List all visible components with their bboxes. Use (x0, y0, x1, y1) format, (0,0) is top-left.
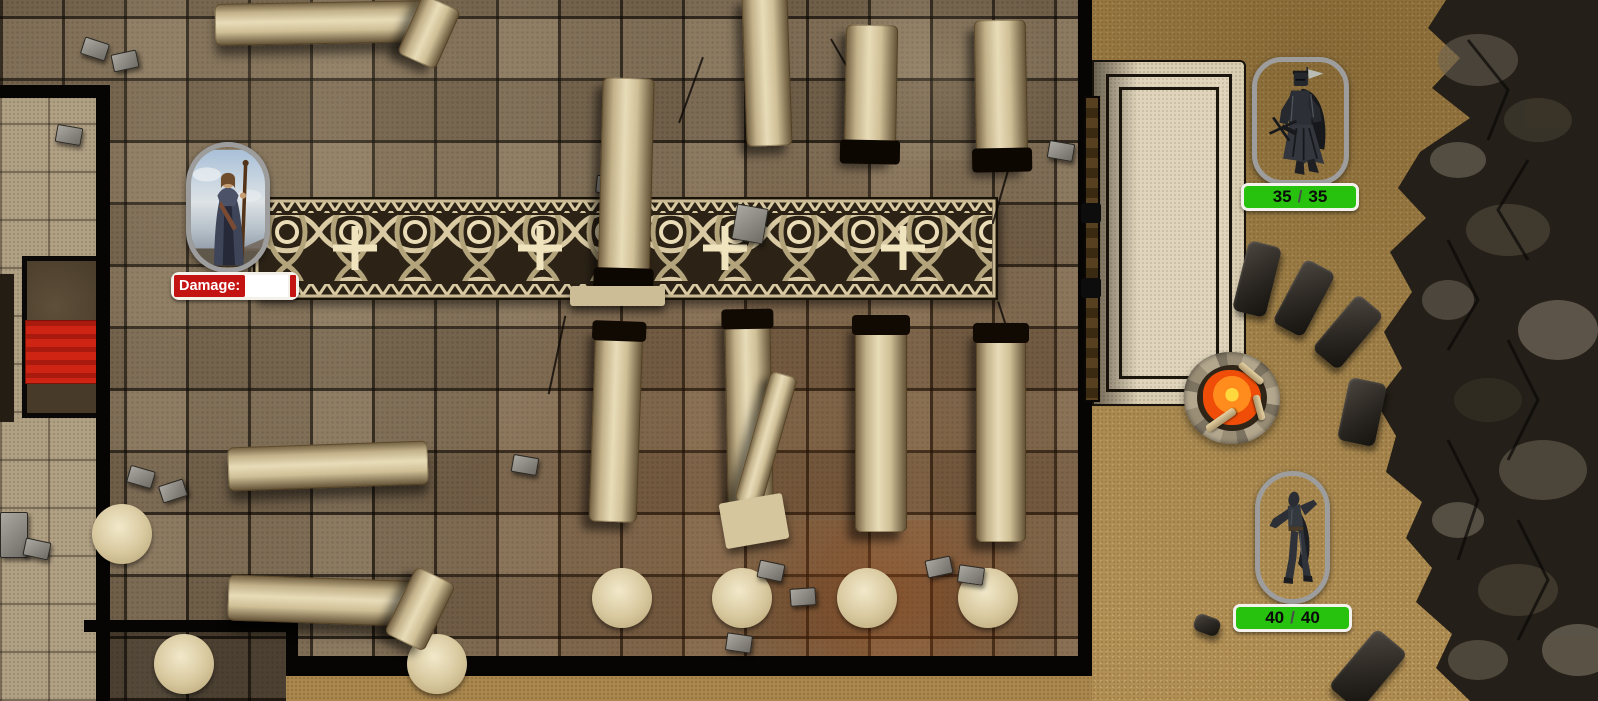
hp-separator: / (1298, 187, 1303, 207)
knight-hp-bar[interactable]: 35 / 35 (1241, 183, 1359, 211)
red-altar-cloth (26, 321, 98, 383)
rubble (731, 203, 769, 244)
hp-current: 40 (1265, 608, 1284, 628)
knight-hp-fill: 35 / 35 (1244, 186, 1356, 208)
rogue-token[interactable] (1255, 471, 1330, 604)
rogue-hp-fill: 40 / 40 (1236, 607, 1349, 629)
hooded-rogue-figure (1260, 476, 1325, 599)
hp-max: 40 (1301, 608, 1320, 628)
fallen-column (976, 328, 1026, 542)
wall (96, 85, 110, 701)
campfire (1184, 352, 1280, 444)
fallen-column (597, 77, 654, 288)
sand-outside-wall (286, 676, 1092, 701)
battlemap: Damage: 35 / 35 (0, 0, 1598, 701)
fallen-column (589, 325, 644, 523)
knight-token[interactable] (1252, 57, 1349, 185)
rubble (789, 587, 816, 607)
damage-widget[interactable]: Damage: (171, 272, 299, 300)
rock (1192, 612, 1223, 638)
damage-caret (290, 275, 296, 297)
damage-label: Damage: (174, 275, 245, 297)
pillar-base (154, 634, 214, 694)
black-knight-figure (1257, 62, 1344, 180)
fallen-column (974, 20, 1029, 169)
wall (0, 85, 110, 98)
fallen-column (227, 441, 428, 492)
rubble (957, 564, 985, 585)
dungeon-floor (0, 0, 1090, 701)
side-chamber (0, 96, 96, 701)
robed-mage-portrait (191, 147, 265, 268)
pillar-base (592, 568, 652, 628)
pillar-base (92, 504, 152, 564)
mage-token[interactable] (186, 142, 270, 273)
hp-current: 35 (1273, 187, 1292, 207)
damage-input[interactable] (245, 275, 288, 297)
altar-platform (22, 256, 102, 418)
hp-separator: / (1290, 608, 1295, 628)
pillar-base (837, 568, 897, 628)
fallen-column (741, 0, 792, 147)
porch-shadow (1094, 62, 1138, 404)
fallen-column (844, 25, 898, 161)
rubble (725, 632, 753, 653)
column-base-slab (570, 286, 665, 306)
stone-bench (1272, 258, 1336, 338)
door-handle (1081, 203, 1101, 223)
hp-max: 35 (1308, 187, 1327, 207)
altar-edge (0, 274, 14, 422)
double-doors (1084, 96, 1100, 402)
rogue-hp-bar[interactable]: 40 / 40 (1233, 604, 1352, 632)
fallen-column (855, 320, 907, 532)
fallen-column (215, 0, 434, 46)
cliff-rocks (1328, 0, 1598, 701)
door-handle (1081, 278, 1101, 298)
